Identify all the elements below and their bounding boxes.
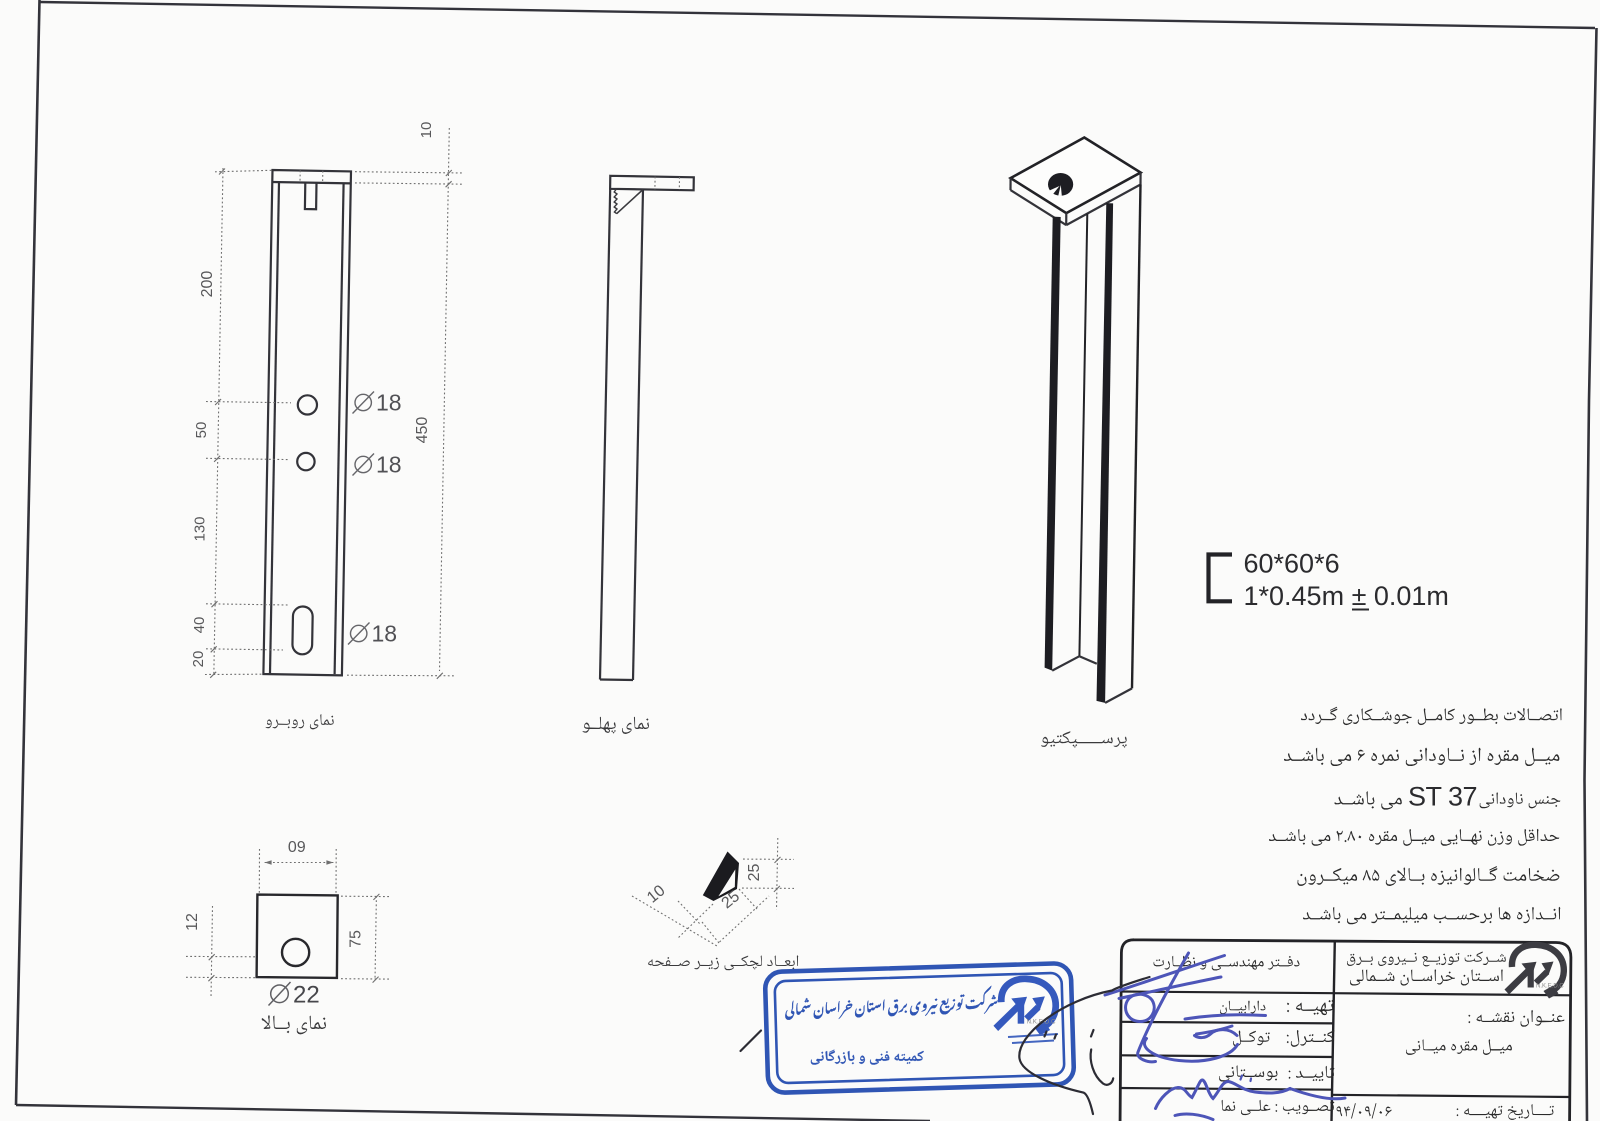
svg-text:1*0.45m ± 0.01m: 1*0.45m ± 0.01m [1244,581,1449,611]
svg-text:18: 18 [372,621,398,647]
svg-text:60*60*6: 60*60*6 [1244,549,1340,579]
svg-text:12: 12 [184,913,201,931]
svg-text:18: 18 [376,390,402,416]
svg-text:60: 60 [288,837,306,854]
svg-text:22: 22 [293,982,320,1009]
svg-text:450: 450 [414,417,431,444]
svg-text:75: 75 [348,930,365,948]
svg-text:18: 18 [376,452,402,478]
svg-text:25: 25 [746,864,763,882]
svg-text:200: 200 [199,271,216,298]
svg-text:20: 20 [190,651,207,668]
svg-text:50: 50 [193,422,210,439]
svg-text:40: 40 [191,617,208,634]
svg-text:130: 130 [192,516,209,541]
svg-text:10: 10 [418,122,435,139]
svg-text:ST 37: ST 37 [1408,782,1477,812]
